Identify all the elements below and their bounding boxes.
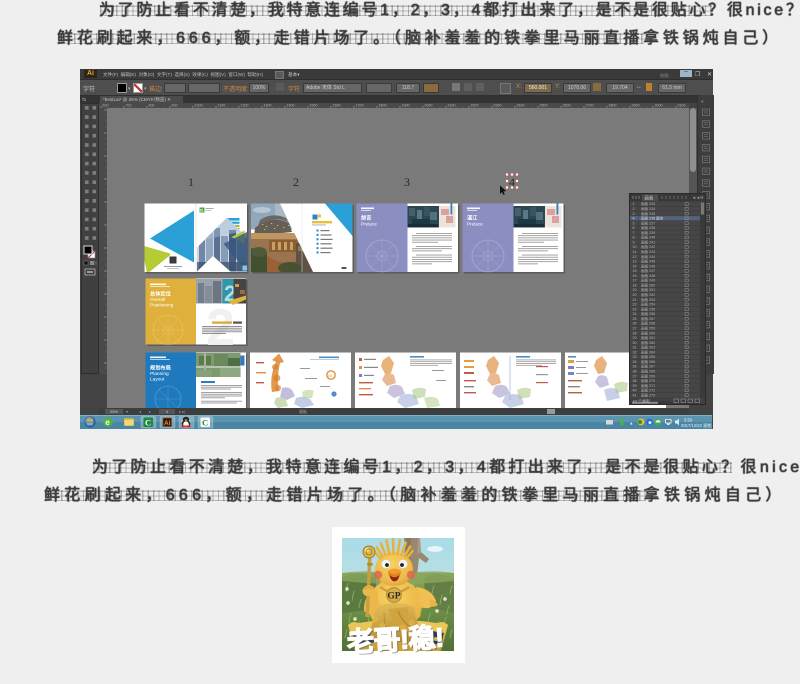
svg-text:C: C	[145, 417, 151, 427]
svg-text:Ai: Ai	[164, 420, 171, 427]
svg-text:画板 270: 画板 270	[641, 378, 655, 383]
svg-text:10: 10	[633, 245, 637, 249]
svg-text:画板 268: 画板 268	[641, 369, 655, 374]
svg-text:40: 40	[633, 389, 637, 393]
svg-text:画板 254: 画板 254	[641, 302, 655, 307]
svg-text:Overall: Overall	[150, 297, 165, 303]
svg-text:18: 18	[633, 283, 637, 287]
svg-text:05: 05	[328, 374, 332, 378]
svg-text:画板 260: 画板 260	[641, 330, 655, 335]
svg-text:画板 267: 画板 267	[641, 364, 655, 369]
svg-text:8: 8	[633, 236, 635, 240]
svg-text:700: 700	[126, 104, 132, 108]
svg-text:15: 15	[633, 269, 637, 273]
svg-text:◄◄: ◄◄	[692, 195, 700, 200]
svg-text:34: 34	[633, 360, 637, 364]
svg-text:3: 3	[633, 212, 635, 216]
svg-text:800: 800	[149, 104, 155, 108]
svg-text:24: 24	[633, 312, 637, 316]
svg-text:画板 272: 画板 272	[641, 388, 655, 393]
svg-text:1900: 1900	[402, 104, 410, 108]
svg-text:25: 25	[633, 317, 637, 321]
svg-text:画板 236 副本: 画板 236 副本	[641, 216, 664, 221]
svg-text:画板 255: 画板 255	[641, 306, 655, 311]
svg-text:画板 244: 画板 244	[641, 254, 655, 259]
svg-text:2: 2	[293, 175, 299, 189]
svg-text:2800: 2800	[609, 104, 617, 108]
svg-text:画板 263: 画板 263	[641, 345, 655, 350]
svg-text:28: 28	[633, 331, 637, 335]
svg-text:19: 19	[633, 288, 637, 292]
svg-text:画板 238: 画板 238	[641, 225, 655, 230]
svg-text:画板 234: 画板 234	[641, 206, 655, 211]
svg-text:33: 33	[633, 355, 637, 359]
svg-text:20: 20	[633, 293, 637, 297]
svg-text:画板 242: 画板 242	[641, 244, 655, 249]
svg-text:总体定位: 总体定位	[150, 290, 172, 298]
svg-text:23: 23	[633, 307, 637, 311]
svg-text:画板 249: 画板 249	[641, 278, 655, 283]
svg-text:2600: 2600	[563, 104, 571, 108]
svg-text:36: 36	[633, 370, 637, 374]
svg-text:«: «	[701, 99, 704, 105]
svg-text:1700: 1700	[356, 104, 364, 108]
svg-text:画板 271: 画板 271	[641, 383, 655, 388]
svg-text:2100: 2100	[448, 104, 456, 108]
svg-text:★: ★	[647, 419, 652, 426]
svg-text:画板 248: 画板 248	[641, 273, 655, 278]
svg-text:900: 900	[172, 104, 178, 108]
svg-text:画板 239: 画板 239	[641, 230, 655, 235]
svg-text:31: 31	[633, 346, 637, 350]
svg-text:3: 3	[404, 175, 410, 189]
svg-text:Planning: Planning	[150, 371, 169, 377]
svg-text:画板 233: 画板 233	[641, 201, 655, 206]
svg-text:2200: 2200	[471, 104, 479, 108]
svg-text:画板: 画板	[645, 195, 654, 202]
svg-text:老哥!稳!: 老哥!稳!	[346, 622, 444, 658]
svg-text:27: 27	[633, 326, 637, 330]
svg-text:4: 4	[633, 217, 635, 221]
svg-text:3000: 3000	[655, 104, 663, 108]
svg-text:9: 9	[633, 240, 635, 244]
svg-text:21: 21	[633, 298, 637, 302]
svg-text:29: 29	[633, 336, 637, 340]
svg-text:画板 247: 画板 247	[641, 268, 655, 273]
svg-text:5: 5	[633, 221, 635, 225]
svg-text:12: 12	[633, 255, 637, 259]
svg-text:画板 237: 画板 237	[641, 220, 655, 225]
svg-text:画板 258: 画板 258	[641, 321, 655, 326]
svg-text:35: 35	[633, 365, 637, 369]
svg-text:14: 14	[633, 264, 637, 268]
svg-text:画板 257: 画板 257	[641, 316, 655, 321]
svg-text:画板 269: 画板 269	[641, 373, 655, 378]
svg-text:16: 16	[633, 274, 637, 278]
svg-text:画板 265: 画板 265	[641, 354, 655, 359]
svg-text:规划布局: 规划布局	[150, 364, 171, 372]
svg-text:e: e	[105, 418, 110, 427]
svg-text:1: 1	[188, 175, 194, 189]
svg-text:Positioning: Positioning	[150, 303, 174, 309]
svg-text:600: 600	[103, 104, 109, 108]
svg-text:22: 22	[633, 303, 637, 307]
svg-text:画板 259: 画板 259	[641, 325, 655, 330]
svg-text:湛江: 湛江	[467, 214, 478, 222]
svg-text:画板 235: 画板 235	[641, 211, 655, 216]
svg-text:1000: 1000	[195, 104, 203, 108]
svg-text:2900: 2900	[632, 104, 640, 108]
svg-text:Layout: Layout	[150, 377, 165, 383]
svg-text:画板 246: 画板 246	[641, 263, 655, 268]
svg-text:1400: 1400	[287, 104, 295, 108]
svg-text:2700: 2700	[586, 104, 594, 108]
svg-text:26: 26	[633, 322, 637, 326]
svg-text:☰: ☰	[700, 195, 704, 200]
svg-text:画板 253: 画板 253	[641, 297, 655, 302]
svg-text:17: 17	[633, 279, 637, 283]
svg-text:1200: 1200	[241, 104, 249, 108]
svg-text:1600: 1600	[333, 104, 341, 108]
svg-text:13: 13	[633, 260, 637, 264]
svg-text:38: 38	[633, 379, 637, 383]
svg-text:GP: GP	[387, 592, 400, 602]
svg-text:41: 41	[633, 393, 637, 397]
svg-text:3:50: 3:50	[684, 417, 693, 422]
svg-text:画板 252: 画板 252	[641, 292, 655, 297]
svg-text:画板 266: 画板 266	[641, 359, 655, 364]
svg-text:11: 11	[633, 250, 637, 254]
svg-text:30: 30	[633, 341, 637, 345]
svg-text:1800: 1800	[379, 104, 387, 108]
svg-text:1100: 1100	[218, 104, 226, 108]
svg-text:44 个画板: 44 个画板	[633, 398, 651, 404]
svg-text:画板 241: 画板 241	[641, 239, 655, 244]
svg-text:2500: 2500	[540, 104, 548, 108]
svg-text:画板 264: 画板 264	[641, 349, 655, 354]
svg-text:3100: 3100	[678, 104, 686, 108]
svg-text:6: 6	[633, 226, 635, 230]
svg-text:画板 243: 画板 243	[641, 249, 655, 254]
svg-text:画板 251: 画板 251	[641, 287, 655, 292]
svg-text:2: 2	[633, 207, 635, 211]
svg-text:1: 1	[633, 202, 635, 206]
svg-text:Pretace: Pretace	[361, 222, 377, 227]
svg-text:1300: 1300	[264, 104, 272, 108]
svg-text:前言: 前言	[361, 214, 372, 222]
svg-text:2400: 2400	[517, 104, 525, 108]
svg-text:画板 262: 画板 262	[641, 340, 655, 345]
svg-text:画板 250: 画板 250	[641, 282, 655, 287]
svg-text:Pretace: Pretace	[467, 222, 483, 227]
svg-text:画板 240: 画板 240	[641, 235, 655, 240]
svg-text:7: 7	[633, 231, 635, 235]
svg-text:32: 32	[633, 350, 637, 354]
svg-text:39: 39	[633, 384, 637, 388]
svg-text:1500: 1500	[310, 104, 318, 108]
svg-text:画板 256: 画板 256	[641, 311, 655, 316]
svg-text:2300: 2300	[494, 104, 502, 108]
svg-text:2000: 2000	[425, 104, 433, 108]
svg-text:画板 245: 画板 245	[641, 259, 655, 264]
svg-text:画板 273: 画板 273	[641, 392, 655, 397]
svg-text:C: C	[202, 417, 208, 427]
svg-text:37: 37	[633, 374, 637, 378]
svg-text:画板 261: 画板 261	[641, 335, 655, 340]
